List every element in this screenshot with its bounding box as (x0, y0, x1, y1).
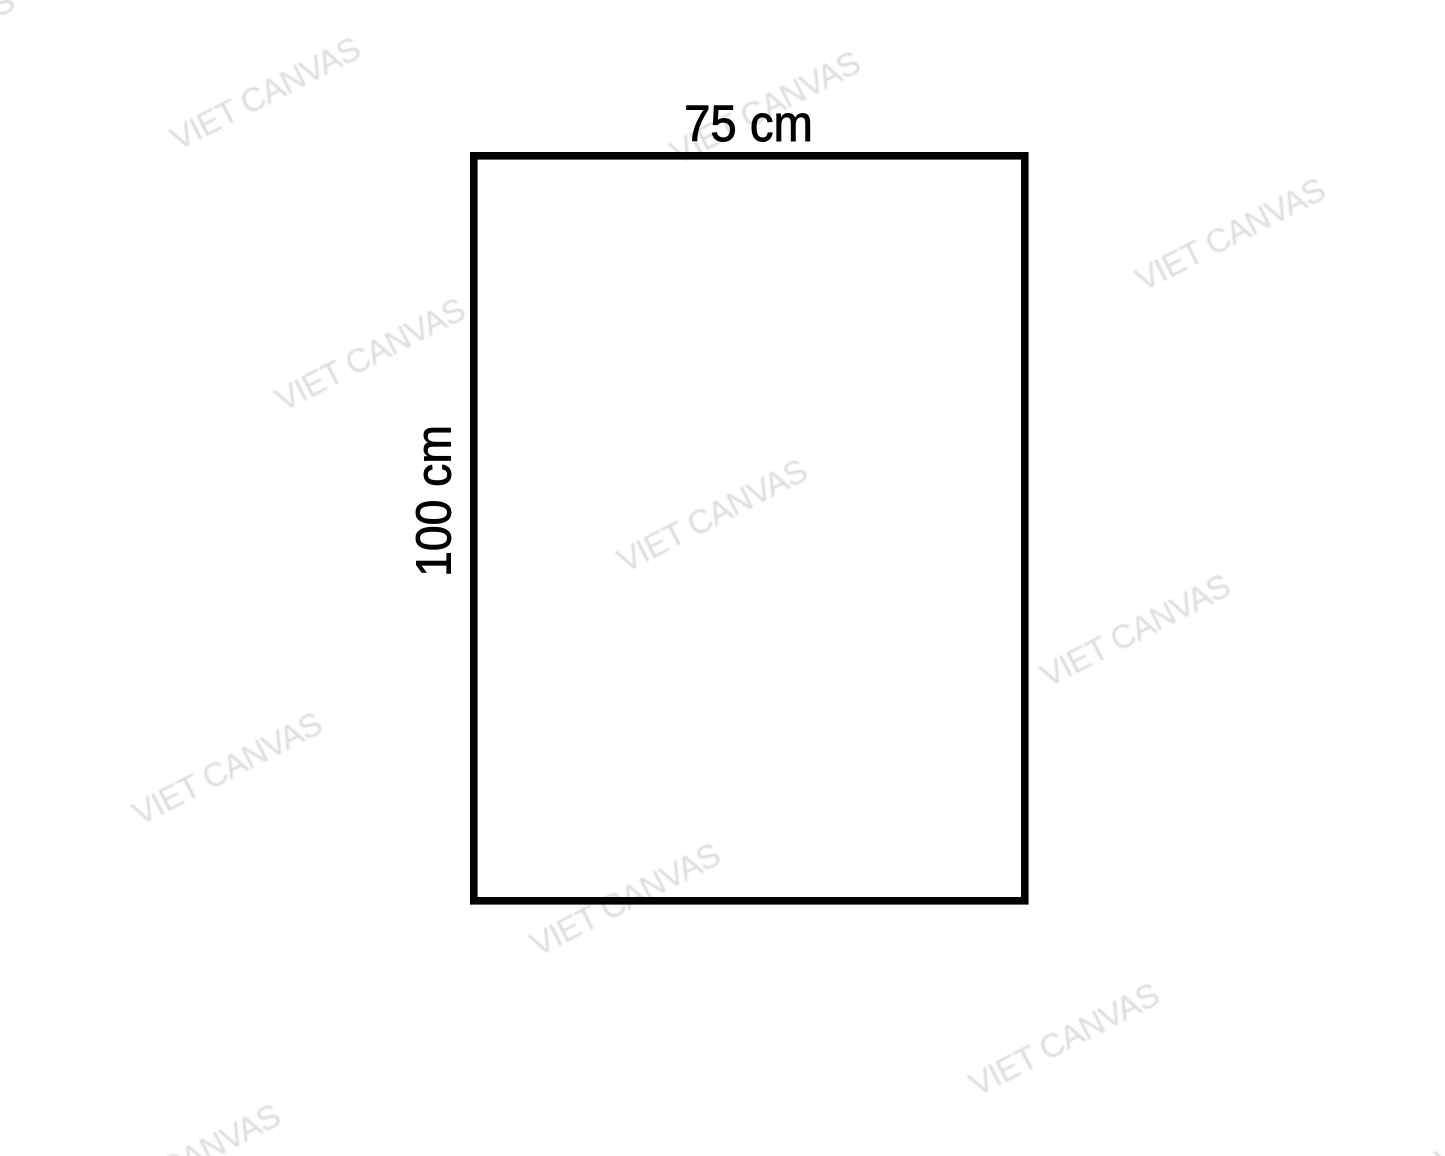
svg-text:VIET CANVAS: VIET CANVAS (611, 451, 812, 579)
svg-text:VIET CANVAS: VIET CANVAS (84, 1096, 285, 1156)
svg-text:100 cm: 100 cm (407, 425, 461, 577)
svg-text:VIET CANVAS: VIET CANVAS (1429, 1051, 1445, 1156)
svg-text:75 cm: 75 cm (684, 96, 813, 152)
svg-text:VIET CANVAS: VIET CANVAS (0, 0, 20, 109)
svg-text:VIET CANVAS: VIET CANVAS (1034, 566, 1235, 694)
svg-text:VIET CANVAS: VIET CANVAS (963, 975, 1164, 1103)
svg-text:VIET CANVAS: VIET CANVAS (126, 704, 327, 832)
svg-text:VIET CANVAS: VIET CANVAS (1129, 170, 1330, 298)
svg-text:VIET CANVAS: VIET CANVAS (164, 29, 365, 157)
svg-text:VIET CANVAS: VIET CANVAS (269, 290, 470, 418)
